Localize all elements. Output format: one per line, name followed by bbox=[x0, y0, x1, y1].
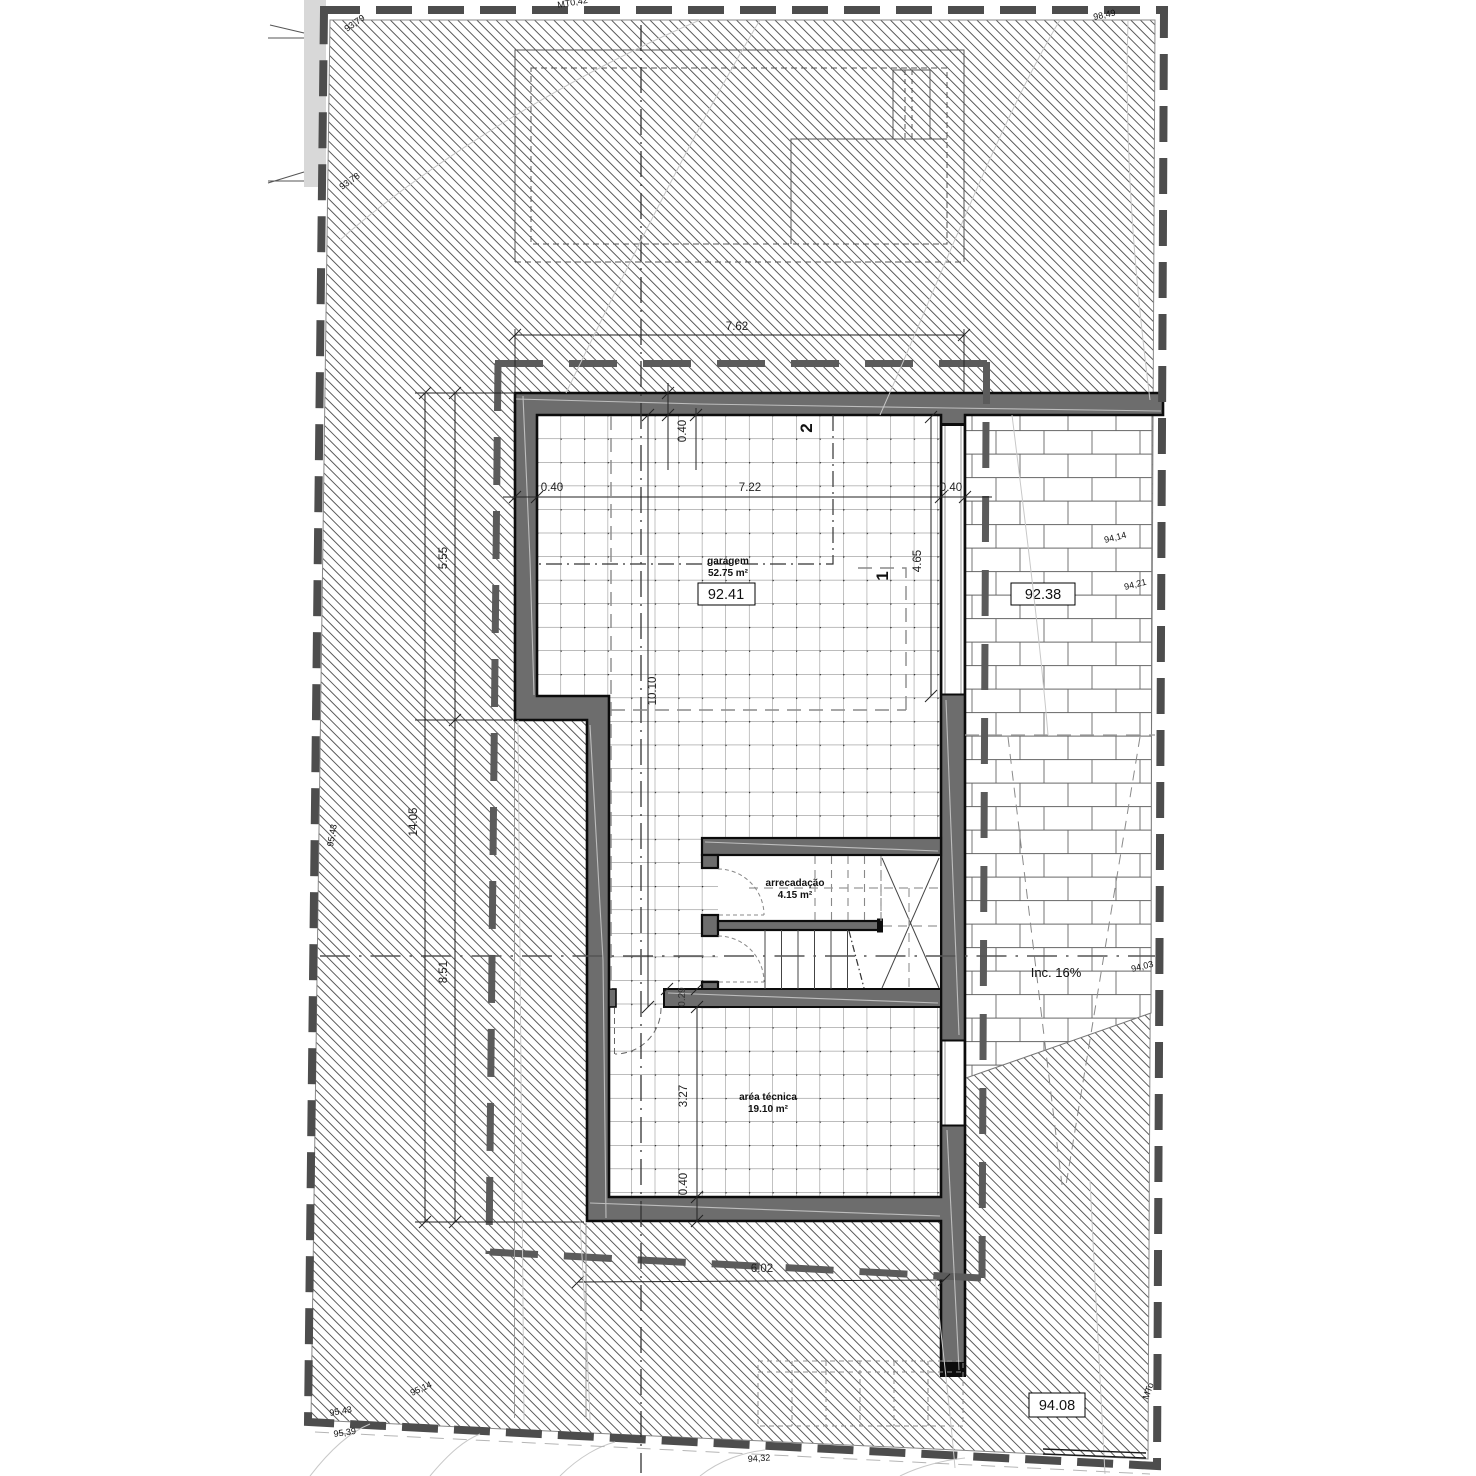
svg-text:1: 1 bbox=[873, 571, 892, 580]
svg-text:6.02: 6.02 bbox=[751, 1263, 773, 1275]
svg-text:7.22: 7.22 bbox=[739, 482, 761, 494]
svg-text:4.15 m²: 4.15 m² bbox=[778, 890, 813, 901]
svg-text:arrecadação: arrecadação bbox=[766, 878, 825, 889]
svg-text:0.40: 0.40 bbox=[541, 482, 563, 494]
svg-text:0.40: 0.40 bbox=[678, 1173, 690, 1195]
svg-text:92.41: 92.41 bbox=[708, 587, 744, 603]
svg-text:10.10: 10.10 bbox=[647, 677, 659, 706]
svg-text:aréa técnica: aréa técnica bbox=[739, 1092, 797, 1103]
svg-text:94,32: 94,32 bbox=[747, 1452, 770, 1464]
svg-text:5.55: 5.55 bbox=[438, 547, 450, 569]
svg-text:8.51: 8.51 bbox=[438, 961, 450, 983]
svg-text:19.10 m²: 19.10 m² bbox=[748, 1104, 789, 1115]
svg-text:3.27: 3.27 bbox=[678, 1085, 690, 1107]
svg-text:0.29: 0.29 bbox=[677, 987, 688, 1007]
svg-text:7.62: 7.62 bbox=[726, 321, 748, 333]
svg-text:Inc. 16%: Inc. 16% bbox=[1031, 965, 1082, 980]
svg-text:14.05: 14.05 bbox=[408, 808, 420, 837]
svg-text:0.40: 0.40 bbox=[677, 420, 689, 442]
svg-text:2: 2 bbox=[797, 423, 816, 432]
svg-text:92.38: 92.38 bbox=[1025, 587, 1061, 603]
svg-text:0.40: 0.40 bbox=[940, 482, 962, 494]
svg-text:garagem: garagem bbox=[707, 556, 749, 567]
svg-text:4.65: 4.65 bbox=[912, 550, 924, 572]
svg-text:94.08: 94.08 bbox=[1039, 1398, 1075, 1414]
svg-text:52.75 m²: 52.75 m² bbox=[708, 568, 749, 579]
